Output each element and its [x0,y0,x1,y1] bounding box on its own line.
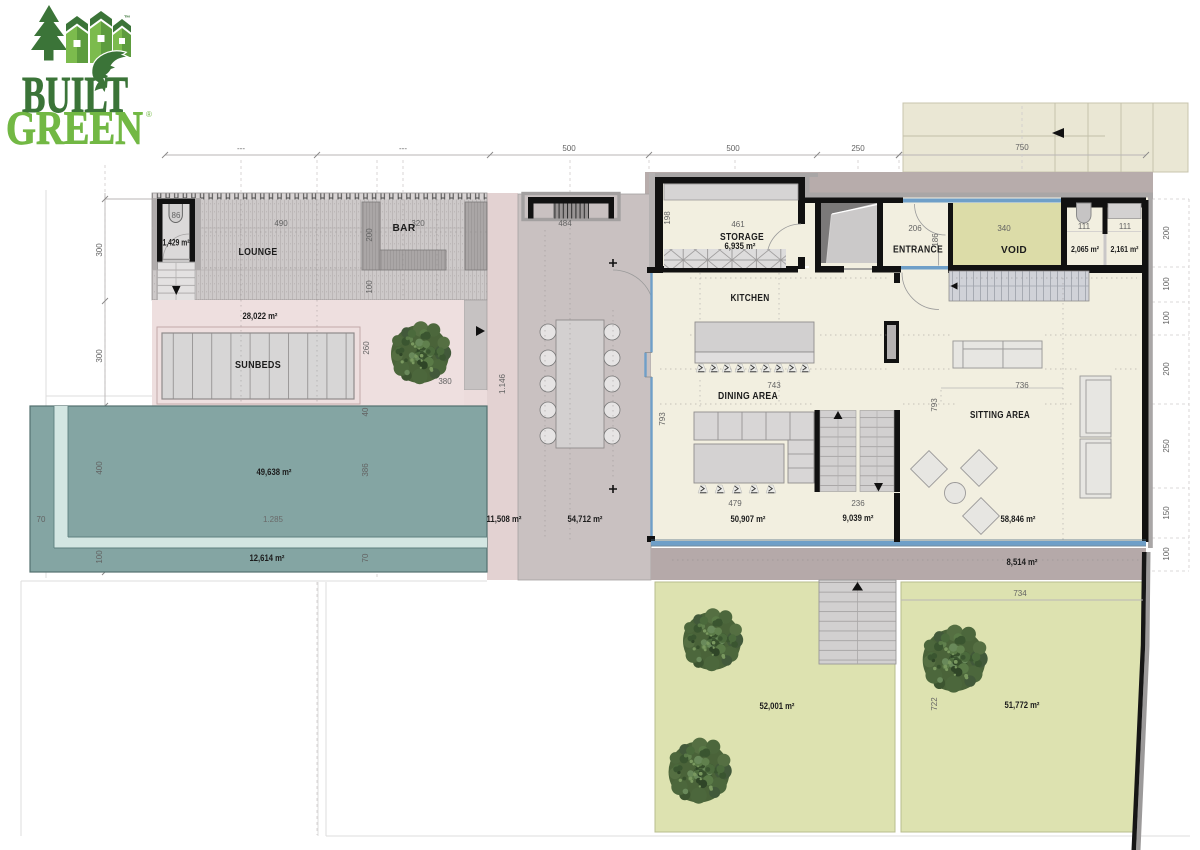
svg-text:8,514 m²: 8,514 m² [1007,557,1038,567]
svg-text:200: 200 [1162,362,1171,376]
svg-text:340: 340 [997,224,1011,233]
svg-text:479: 479 [728,499,742,508]
svg-text:11,508 m²: 11,508 m² [487,514,522,524]
svg-text:200: 200 [365,228,374,242]
svg-text:111: 111 [1078,222,1091,231]
svg-text:743: 743 [767,381,781,390]
svg-text:28,022 m²: 28,022 m² [243,311,278,321]
svg-text:---: --- [237,144,245,153]
svg-text:100: 100 [365,280,374,294]
svg-text:750: 750 [1015,143,1029,152]
svg-text:206: 206 [908,224,922,233]
svg-text:49,638 m²: 49,638 m² [257,467,292,477]
svg-text:490: 490 [274,219,288,228]
svg-text:500: 500 [562,144,576,153]
svg-text:300: 300 [95,243,104,257]
svg-text:793: 793 [930,398,939,412]
svg-text:KITCHEN: KITCHEN [731,292,770,304]
svg-text:40: 40 [361,407,370,416]
svg-text:100: 100 [1162,277,1171,291]
svg-text:---: --- [399,144,407,153]
svg-text:793: 793 [658,412,667,426]
svg-text:100: 100 [1162,311,1171,325]
svg-text:58,846 m²: 58,846 m² [1001,514,1036,524]
svg-text:GREEN: GREEN [6,102,143,155]
svg-text:380: 380 [438,377,452,386]
svg-text:LOUNGE: LOUNGE [239,246,278,258]
svg-text:9,039 m²: 9,039 m² [843,513,874,523]
svg-text:2,161 m²: 2,161 m² [1111,245,1139,254]
svg-text:500: 500 [726,144,740,153]
svg-text:386: 386 [361,463,370,477]
svg-text:™: ™ [124,15,131,22]
svg-text:DINING AREA: DINING AREA [718,390,778,402]
svg-text:260: 260 [362,341,371,355]
svg-text:400: 400 [95,461,104,475]
svg-text:70: 70 [37,515,46,524]
svg-text:250: 250 [851,144,865,153]
svg-text:461: 461 [731,220,745,229]
svg-text:734: 734 [1013,589,1027,598]
svg-text:100: 100 [95,550,104,564]
svg-text:SUNBEDS: SUNBEDS [235,359,281,371]
svg-text:1,429 m²: 1,429 m² [163,238,190,248]
svg-text:484: 484 [558,219,572,228]
svg-text:736: 736 [1015,381,1029,390]
svg-text:BAR: BAR [393,222,416,234]
svg-text:1.146: 1.146 [498,373,507,394]
svg-text:54,712 m²: 54,712 m² [568,514,603,524]
svg-text:®: ® [146,110,152,119]
svg-text:300: 300 [95,349,104,363]
svg-text:6,935 m²: 6,935 m² [725,241,756,251]
svg-text:1.285: 1.285 [263,515,284,524]
svg-text:236: 236 [851,499,865,508]
svg-text:ENTRANCE: ENTRANCE [893,244,943,256]
svg-text:111: 111 [1119,222,1132,231]
svg-text:VOID: VOID [1001,244,1027,256]
svg-text:2,065 m²: 2,065 m² [1071,245,1099,254]
svg-text:52,001 m²: 52,001 m² [760,701,795,711]
svg-text:100: 100 [1162,547,1171,561]
svg-text:722: 722 [930,697,939,711]
svg-text:12,614 m²: 12,614 m² [250,553,285,563]
svg-text:86: 86 [172,211,181,220]
svg-text:150: 150 [1162,506,1171,520]
svg-text:198: 198 [663,211,672,225]
svg-text:51,772 m²: 51,772 m² [1005,700,1040,710]
svg-text:50,907 m²: 50,907 m² [731,514,766,524]
svg-text:SITTING AREA: SITTING AREA [970,409,1030,421]
svg-text:200: 200 [1162,226,1171,240]
svg-text:70: 70 [361,553,370,562]
svg-text:250: 250 [1162,439,1171,453]
